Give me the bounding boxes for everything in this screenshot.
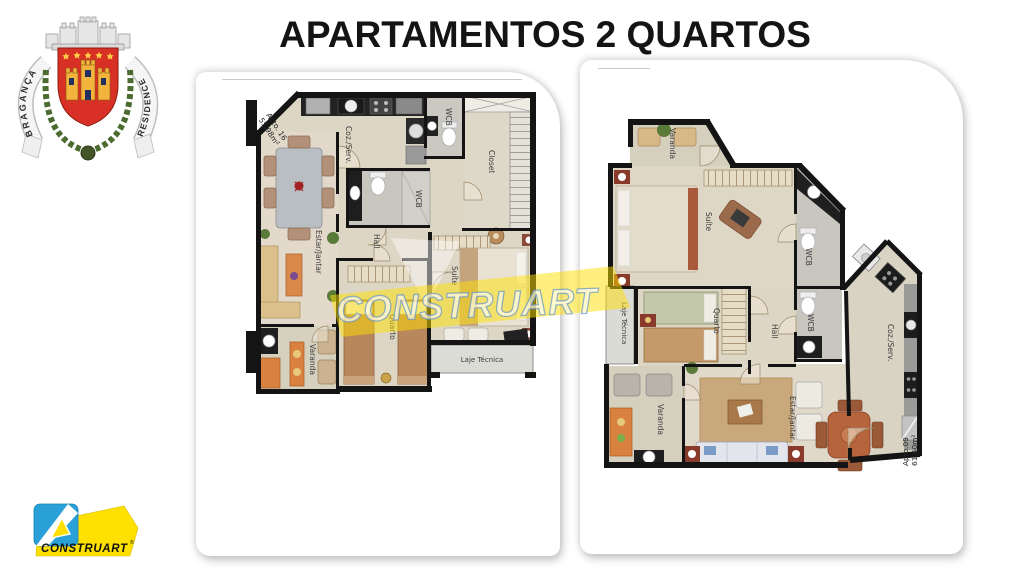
crest-shield <box>58 48 118 126</box>
room-label-quarto: Quarto <box>388 314 397 340</box>
room-label-varanda-bottom: Varanda <box>656 404 665 435</box>
floorplan-apto-09: Varanda Suíte WCB WCB Coz./Serv. Quarto … <box>600 116 930 472</box>
floorplan-apto-16: Apto. 16 55,98m² Coz./Serv. WCB Closet E… <box>246 86 538 410</box>
apto-area: 61,60m² <box>910 435 919 466</box>
room-label-laje: Laje Técnica <box>461 356 503 364</box>
room-label-wcb-lower: WCB <box>806 314 815 332</box>
logo-registered-mark: ® <box>130 539 134 546</box>
crest-crown-icon <box>46 17 130 50</box>
logo-mark-icon <box>34 504 78 546</box>
room-label-wcb-upper: WCB <box>804 248 813 266</box>
room-label-coz: Coz./Serv. <box>344 126 353 163</box>
apto-number: Apto.09 <box>901 437 910 466</box>
slide: BRAGANÇA RESIDENCE APARTAMENTOS 2 QUARTO… <box>0 0 1024 576</box>
room-label-varanda-top: Varanda <box>668 128 677 159</box>
room-label-wcb-mid: WCB <box>414 190 423 208</box>
logo-text: CONSTRUART <box>41 543 128 555</box>
room-label-wcb-top: WCB <box>444 108 453 126</box>
construart-logo: CONSTRUART ® <box>24 496 144 564</box>
room-label-estar: Estar/Jantar <box>788 396 797 441</box>
room-label-laje: Laje Técnica <box>620 302 628 344</box>
room-label-estar: Estar/Jantar <box>314 230 323 275</box>
room-label-closet: Closet <box>487 150 496 173</box>
room-label-varanda: Varanda <box>308 344 317 375</box>
card-top-line <box>222 79 522 80</box>
crest-knot-icon <box>81 146 95 160</box>
room-label-suite: Suíte <box>704 212 713 232</box>
room-label-coz: Coz./Serv. <box>886 324 895 361</box>
room-label-suite: Suíte <box>450 266 459 286</box>
room-label-hall: Hall <box>770 324 779 338</box>
card-top-line <box>598 68 650 69</box>
slide-title: APARTAMENTOS 2 QUARTOS <box>235 14 855 56</box>
braganca-residence-crest: BRAGANÇA RESIDENCE <box>12 6 164 170</box>
room-label-hall: Hall <box>372 234 381 248</box>
room-label-quarto: Quarto <box>712 308 721 334</box>
apartment-label-right: Apto.09 61,60m² <box>901 435 919 466</box>
